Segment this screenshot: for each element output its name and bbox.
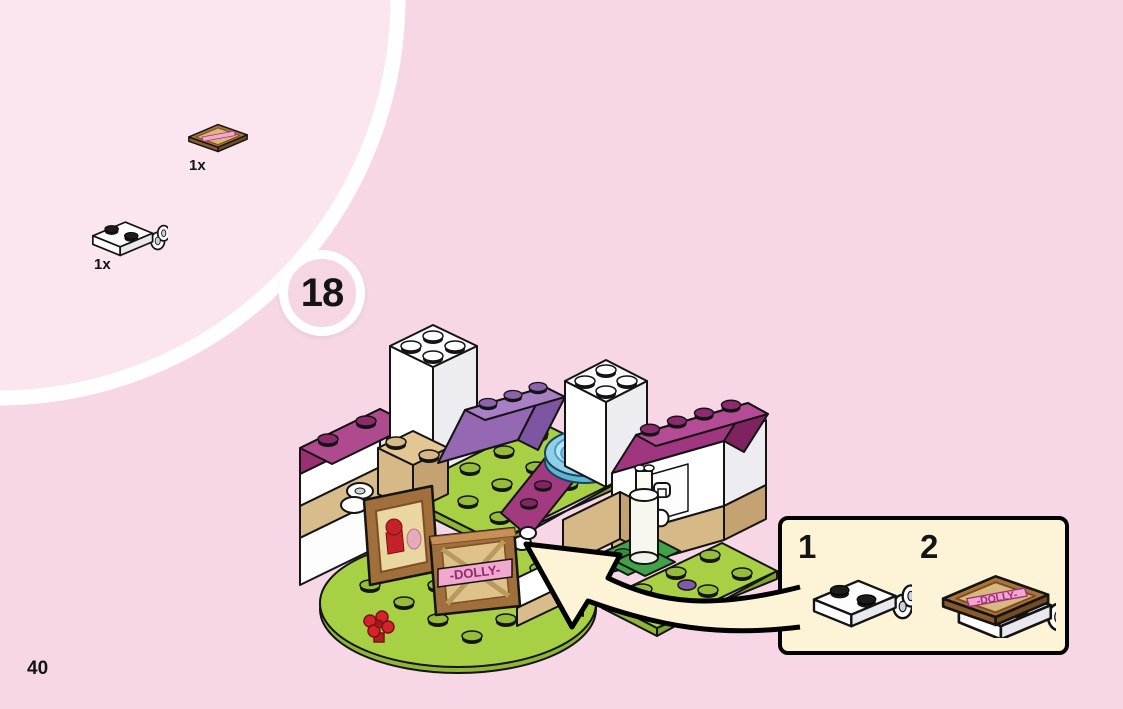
callout-arrow (500, 515, 810, 665)
substep1-piece-graphic (800, 562, 912, 637)
substep2-piece-graphic: -DOLLY- (930, 554, 1056, 638)
substep-callout-box: 1 2 -DOLLY- (778, 516, 1069, 655)
step-number: 18 (301, 271, 344, 316)
instruction-page: 1x 1x 18 (0, 0, 1123, 709)
part-quantity-label: 1x (189, 157, 206, 174)
tile-piece-icon (183, 112, 253, 159)
picture-frame (364, 486, 438, 585)
part-quantity-label: 1x (94, 256, 111, 273)
page-number: 40 (27, 658, 48, 680)
